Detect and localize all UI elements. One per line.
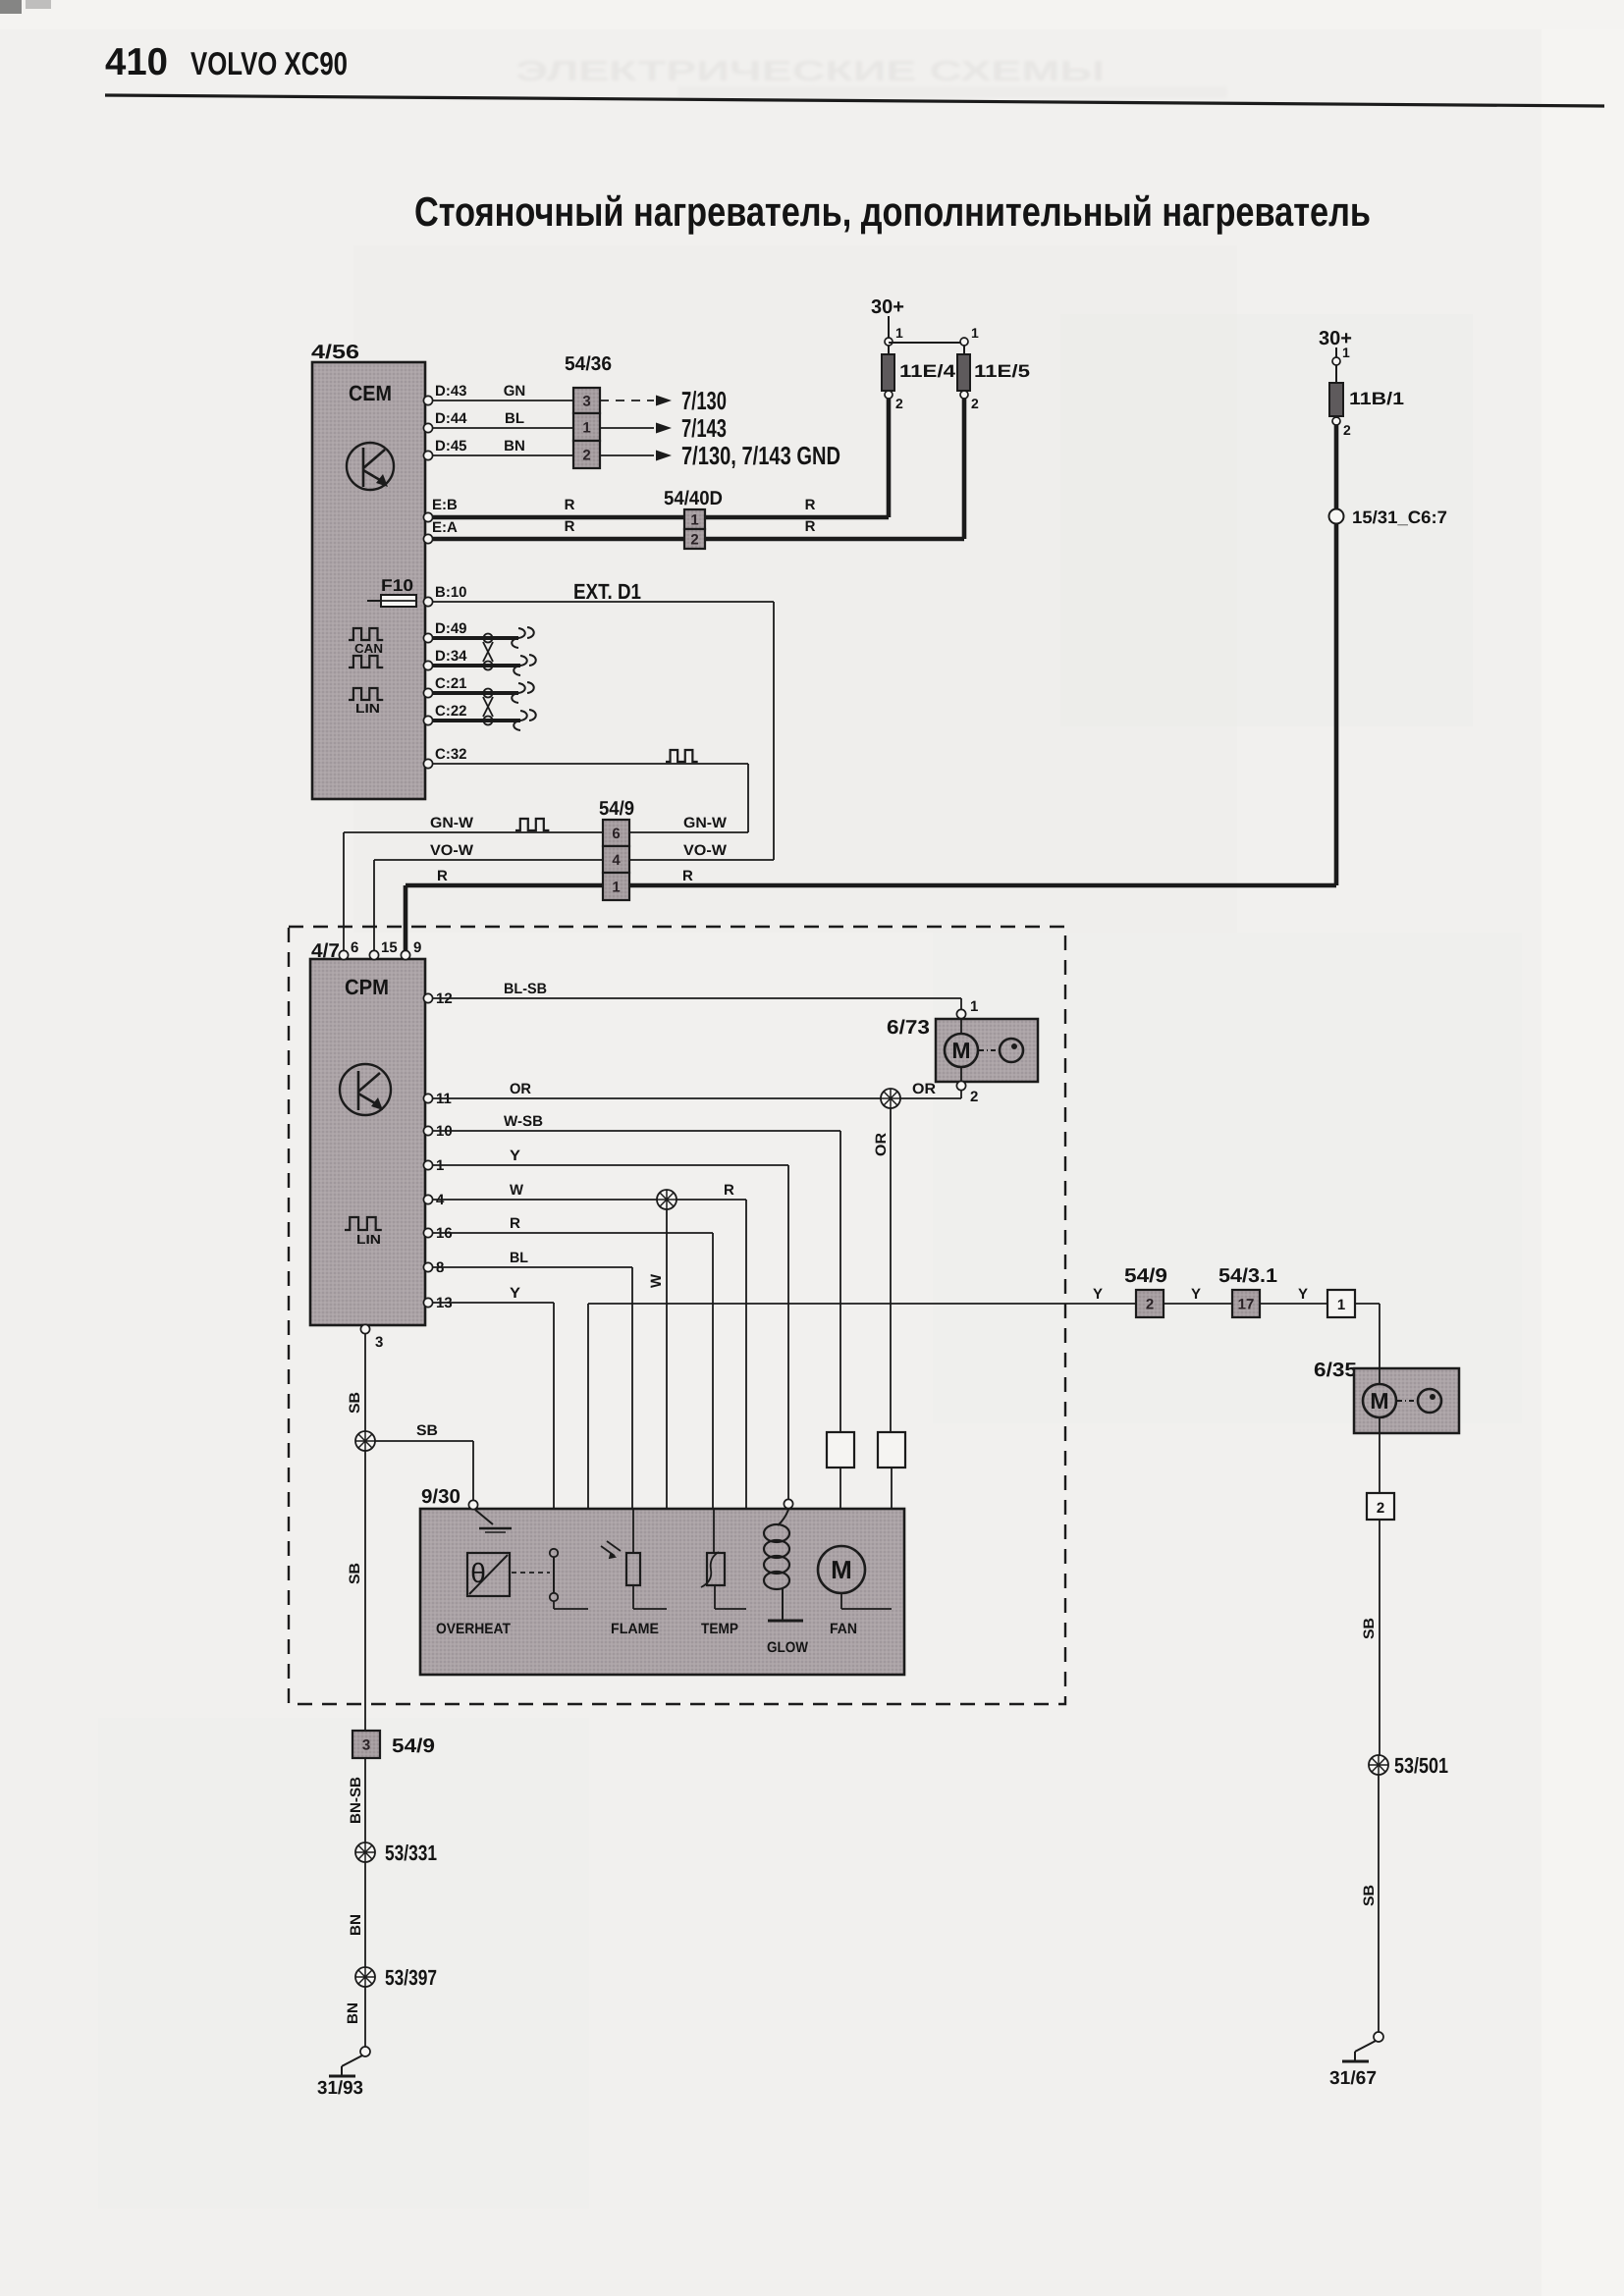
svg-text:CPM: CPM [345, 975, 389, 999]
svg-text:LIN: LIN [356, 1232, 381, 1247]
svg-text:Y: Y [510, 1285, 520, 1302]
svg-text:Y: Y [1093, 1286, 1103, 1303]
svg-text:TEMP: TEMP [701, 1621, 738, 1637]
svg-text:54/36: 54/36 [565, 353, 612, 375]
svg-text:VOLVO XC90: VOLVO XC90 [190, 45, 348, 81]
svg-text:53/331: 53/331 [385, 1841, 437, 1865]
svg-text:53/397: 53/397 [385, 1965, 437, 1990]
svg-text:D:44: D:44 [435, 410, 467, 427]
svg-text:11B/1: 11B/1 [1349, 389, 1404, 408]
svg-text:VO-W: VO-W [683, 842, 728, 859]
svg-text:R: R [805, 518, 816, 535]
svg-text:OR: OR [510, 1081, 531, 1097]
svg-text:M: M [1370, 1388, 1388, 1414]
svg-text:2: 2 [970, 1089, 978, 1105]
svg-text:M: M [951, 1038, 970, 1063]
svg-text:D:34: D:34 [435, 648, 467, 665]
svg-text:7/143: 7/143 [681, 413, 727, 443]
svg-text:7/130, 7/143 GND: 7/130, 7/143 GND [681, 441, 840, 470]
svg-text:CEM: CEM [349, 381, 392, 405]
svg-text:54/40D: 54/40D [664, 488, 723, 509]
svg-text:GLOW: GLOW [767, 1639, 809, 1656]
svg-text:BN: BN [345, 2002, 361, 2024]
svg-text:C:21: C:21 [435, 675, 467, 692]
svg-text:6/35: 6/35 [1314, 1360, 1357, 1381]
svg-text:SB: SB [416, 1422, 438, 1439]
svg-text:Y: Y [1191, 1286, 1201, 1303]
svg-text:OR: OR [873, 1133, 890, 1156]
svg-text:R: R [437, 868, 448, 884]
svg-text:D:49: D:49 [435, 620, 467, 637]
svg-text:F10: F10 [381, 576, 413, 595]
svg-text:2: 2 [690, 532, 698, 549]
svg-text:OR: OR [912, 1081, 936, 1097]
svg-text:D:43: D:43 [435, 383, 467, 400]
svg-text:17: 17 [1238, 1297, 1255, 1313]
svg-text:2: 2 [971, 396, 979, 411]
svg-text:BL-SB: BL-SB [504, 981, 547, 997]
svg-text:GN-W: GN-W [683, 815, 728, 831]
svg-text:2: 2 [895, 396, 903, 411]
svg-text:1: 1 [895, 325, 903, 341]
svg-text:54/9: 54/9 [599, 798, 634, 820]
svg-text:1: 1 [690, 512, 698, 529]
svg-text:7/130: 7/130 [681, 386, 727, 415]
svg-text:2: 2 [1146, 1297, 1154, 1313]
svg-text:1: 1 [970, 998, 978, 1015]
svg-text:4/7: 4/7 [311, 940, 340, 962]
svg-text:W: W [510, 1182, 524, 1199]
svg-text:3: 3 [582, 394, 590, 410]
svg-text:C:32: C:32 [435, 746, 467, 763]
svg-text:9/30: 9/30 [421, 1486, 460, 1508]
svg-text:GN: GN [504, 383, 526, 400]
svg-text:R: R [805, 497, 816, 513]
svg-text:W-SB: W-SB [504, 1113, 543, 1130]
svg-text:Стояночный нагреватель, дополн: Стояночный нагреватель, дополнительный н… [414, 188, 1371, 235]
svg-text:W: W [648, 1273, 665, 1288]
svg-text:54/9: 54/9 [1124, 1265, 1167, 1287]
svg-text:4/56: 4/56 [311, 342, 359, 363]
svg-text:BN: BN [348, 1914, 364, 1936]
svg-text:2: 2 [1343, 422, 1351, 438]
svg-text:1: 1 [971, 325, 979, 341]
svg-text:3: 3 [362, 1737, 370, 1754]
svg-text:1: 1 [1342, 345, 1350, 360]
svg-text:BN-SB: BN-SB [348, 1777, 364, 1824]
svg-text:31/67: 31/67 [1329, 2068, 1377, 2089]
svg-text:SB: SB [1361, 1885, 1378, 1906]
svg-text:D:45: D:45 [435, 438, 467, 454]
svg-text:6: 6 [351, 939, 358, 956]
svg-text:B:10: B:10 [435, 584, 467, 601]
svg-text:FLAME: FLAME [611, 1621, 659, 1637]
svg-text:CAN: CAN [354, 641, 383, 656]
svg-text:6/73: 6/73 [887, 1017, 930, 1039]
svg-text:410: 410 [105, 41, 168, 83]
svg-text:EXT. D1: EXT. D1 [573, 579, 641, 604]
svg-text:1: 1 [612, 880, 620, 896]
svg-text:Y: Y [1298, 1286, 1308, 1303]
svg-text:E:A: E:A [432, 519, 458, 536]
svg-text:31/93: 31/93 [317, 2078, 363, 2099]
svg-text:6: 6 [612, 826, 620, 842]
svg-text:SB: SB [347, 1563, 363, 1584]
svg-text:3: 3 [375, 1334, 383, 1351]
svg-text:11E/5: 11E/5 [974, 361, 1030, 381]
svg-text:15/31_C6:7: 15/31_C6:7 [1352, 507, 1447, 527]
svg-text:1: 1 [582, 420, 590, 437]
svg-text:C:22: C:22 [435, 703, 467, 720]
svg-text:15: 15 [381, 939, 398, 956]
svg-text:ЭЛЕКТРИЧЕСКИЕ СХЕМЫ: ЭЛЕКТРИЧЕСКИЕ СХЕМЫ [515, 56, 1105, 87]
svg-text:VO-W: VO-W [430, 842, 474, 859]
svg-text:Y: Y [510, 1148, 520, 1164]
svg-text:R: R [724, 1182, 734, 1199]
svg-text:2: 2 [582, 448, 590, 464]
svg-text:M: M [831, 1555, 852, 1584]
svg-text:1: 1 [1337, 1297, 1345, 1313]
svg-text:SB: SB [1361, 1618, 1378, 1639]
svg-text:30+: 30+ [871, 296, 904, 318]
svg-text:FAN: FAN [830, 1621, 857, 1637]
svg-text:54/9: 54/9 [392, 1735, 435, 1757]
svg-text:GN-W: GN-W [430, 815, 474, 831]
svg-text:4: 4 [612, 852, 621, 869]
svg-text:R: R [682, 868, 693, 884]
svg-text:BL: BL [505, 410, 524, 427]
svg-text:SB: SB [347, 1392, 363, 1414]
svg-text:2: 2 [1377, 1500, 1384, 1517]
svg-text:R: R [565, 518, 575, 535]
svg-text:OVERHEAT: OVERHEAT [436, 1621, 511, 1637]
svg-text:BN: BN [504, 438, 525, 454]
svg-text:R: R [565, 497, 575, 513]
svg-text:R: R [510, 1215, 520, 1232]
svg-text:LIN: LIN [355, 701, 380, 716]
svg-text:E:B: E:B [432, 497, 458, 513]
svg-text:9: 9 [413, 939, 421, 956]
svg-text:BL: BL [510, 1250, 528, 1266]
svg-text:11E/4: 11E/4 [899, 361, 955, 381]
svg-text:53/501: 53/501 [1394, 1753, 1448, 1778]
svg-text:54/3.1: 54/3.1 [1218, 1265, 1277, 1287]
